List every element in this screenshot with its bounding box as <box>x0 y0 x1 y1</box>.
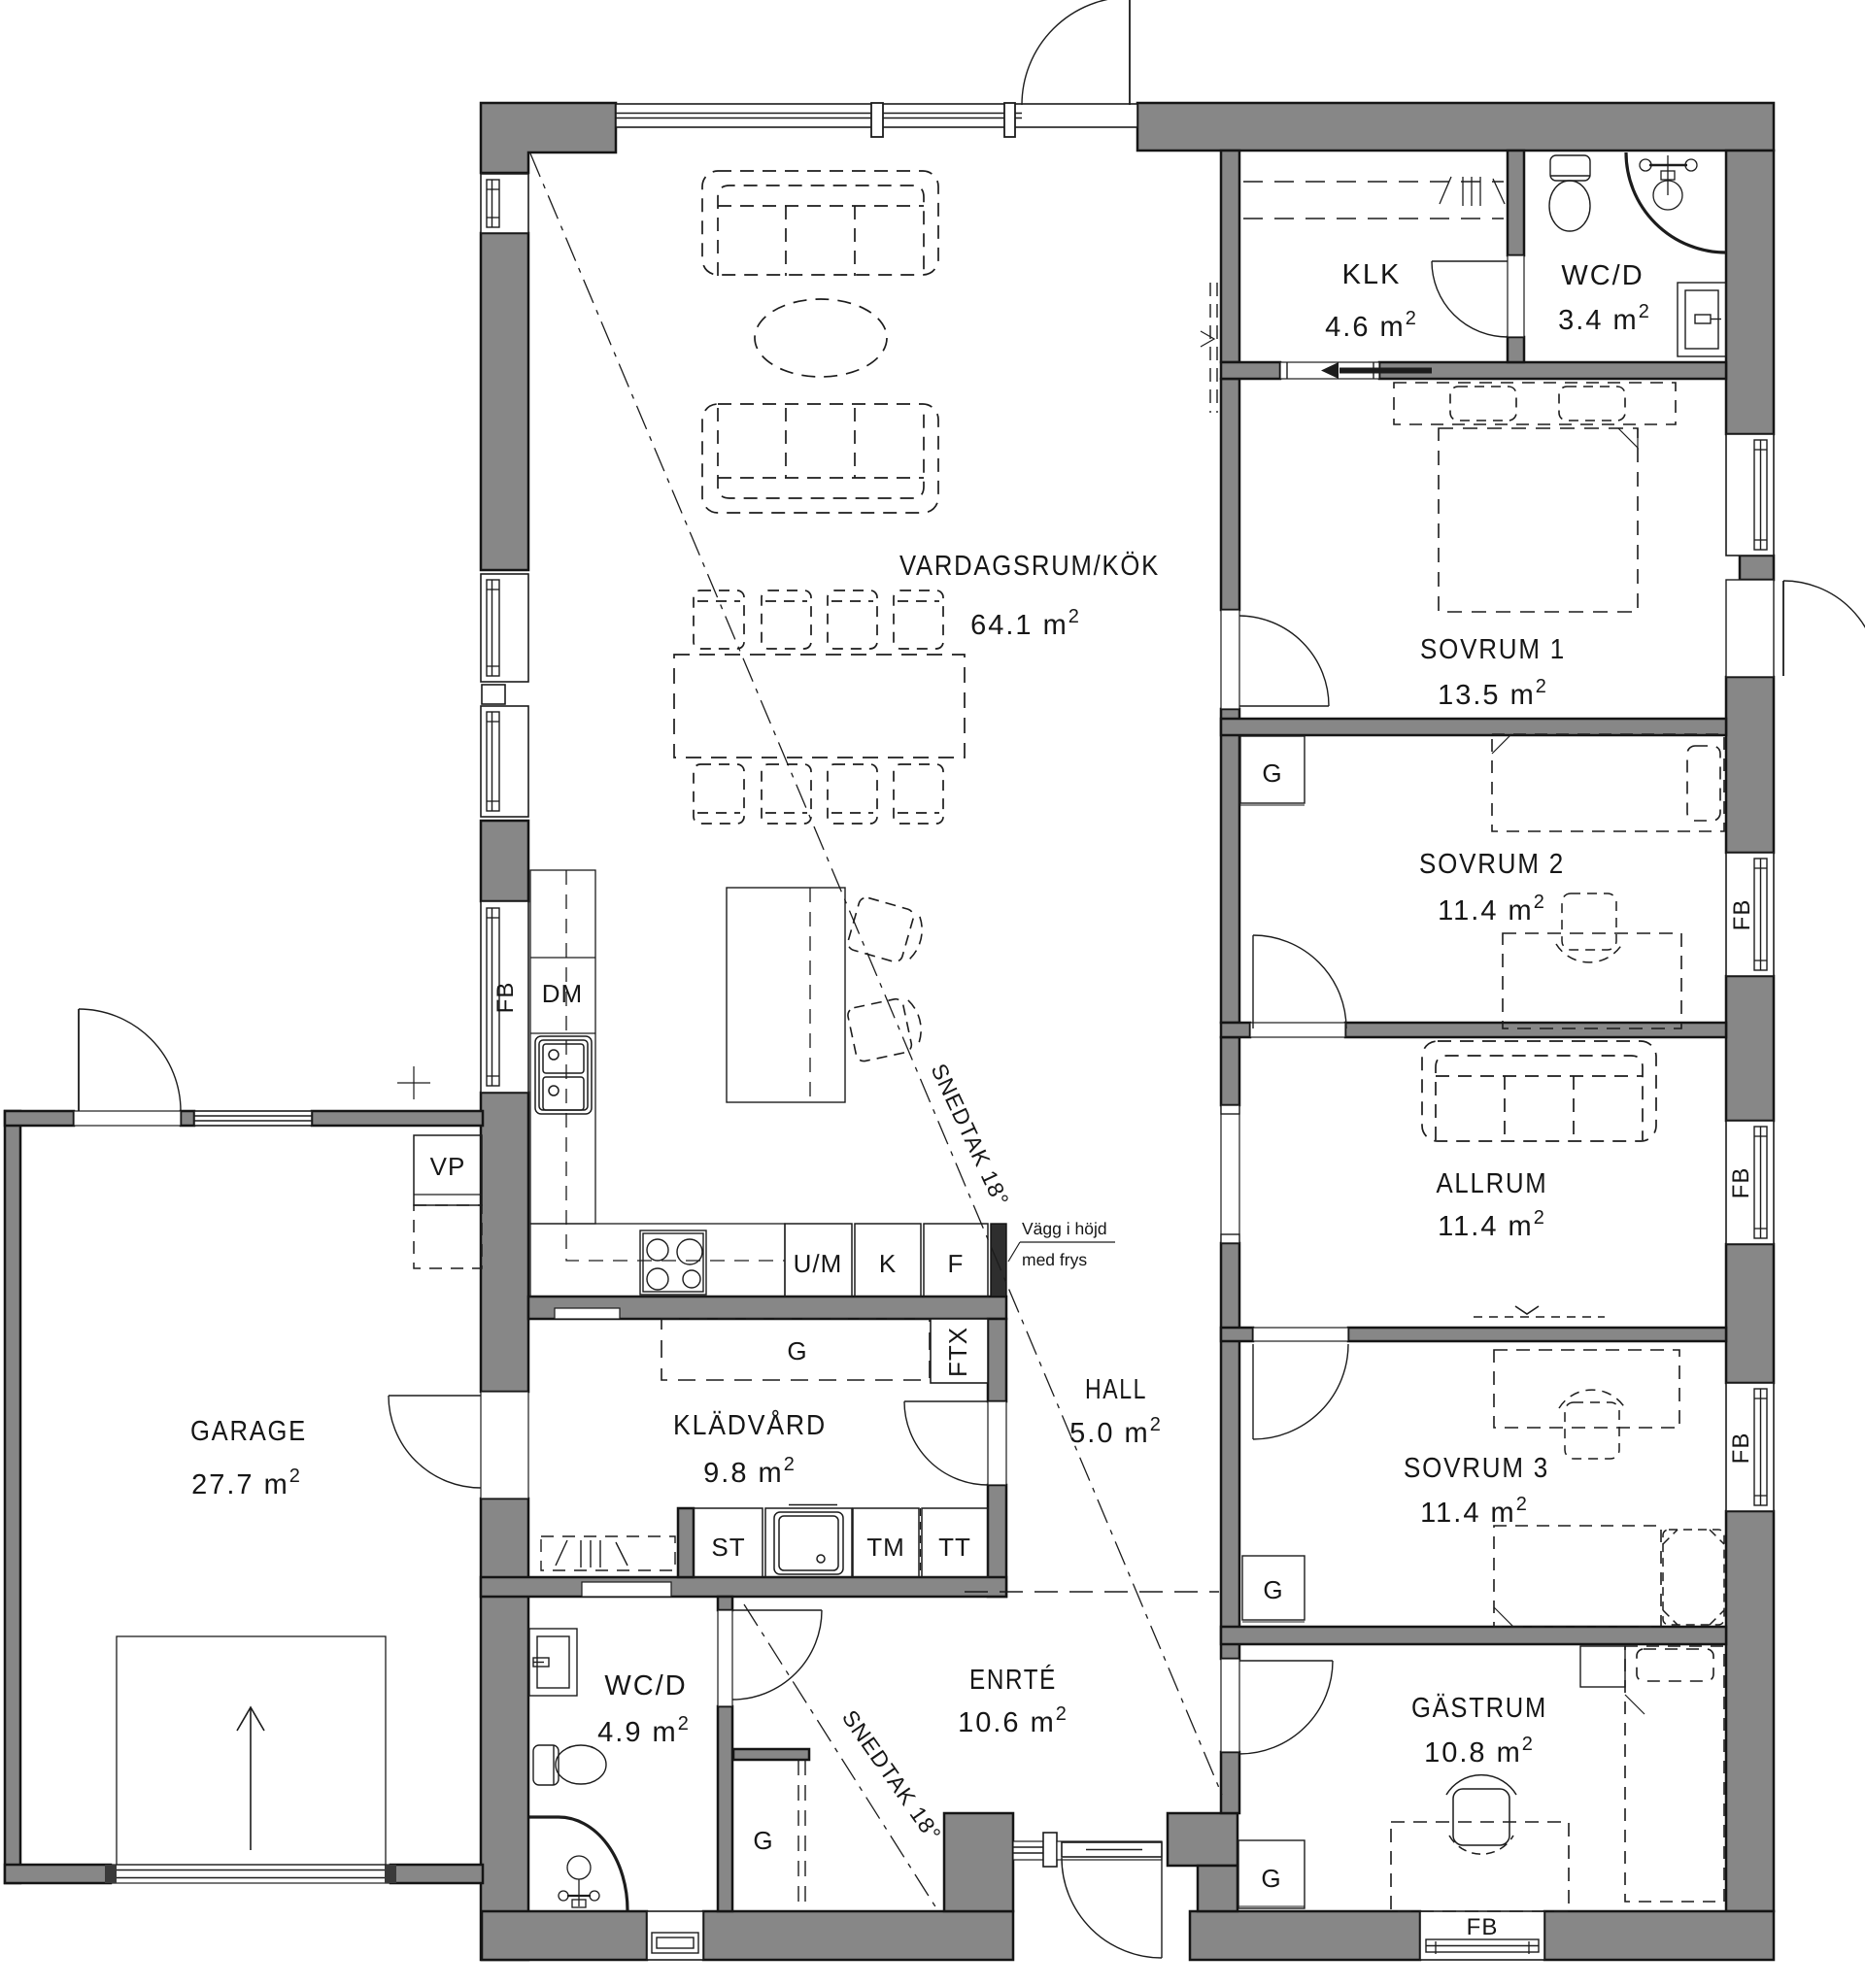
svg-text:G: G <box>787 1336 807 1365</box>
svg-text:FB: FB <box>1729 899 1755 931</box>
svg-text:FB: FB <box>1728 1167 1754 1199</box>
svg-text:KLÄDVÅRD: KLÄDVÅRD <box>673 1409 827 1441</box>
svg-text:GÄSTRUM: GÄSTRUM <box>1411 1693 1547 1724</box>
svg-text:HALL: HALL <box>1085 1374 1147 1405</box>
svg-text:F: F <box>948 1249 965 1278</box>
svg-text:SOVRUM 1: SOVRUM 1 <box>1420 634 1566 665</box>
svg-text:G: G <box>753 1826 773 1855</box>
svg-text:DM: DM <box>542 979 583 1008</box>
svg-text:SOVRUM 3: SOVRUM 3 <box>1404 1453 1549 1484</box>
svg-text:ENRTÉ: ENRTÉ <box>969 1664 1057 1696</box>
svg-text:TM: TM <box>866 1533 905 1562</box>
svg-text:G: G <box>1263 1575 1283 1604</box>
svg-text:ALLRUM: ALLRUM <box>1437 1168 1548 1199</box>
svg-text:WC/D: WC/D <box>1561 260 1644 291</box>
svg-text:64.1 m2: 64.1 m2 <box>970 606 1081 641</box>
svg-text:FB: FB <box>1467 1914 1499 1940</box>
svg-text:FTX: FTX <box>943 1327 972 1377</box>
svg-text:G: G <box>1262 758 1282 788</box>
svg-text:4.6 m2: 4.6 m2 <box>1325 308 1418 343</box>
svg-text:11.4 m2: 11.4 m2 <box>1438 1207 1546 1242</box>
svg-text:5.0 m2: 5.0 m2 <box>1069 1414 1163 1449</box>
svg-text:GARAGE: GARAGE <box>190 1416 307 1447</box>
svg-text:K: K <box>879 1249 897 1278</box>
svg-text:SOVRUM 2: SOVRUM 2 <box>1419 849 1565 880</box>
svg-text:10.6 m2: 10.6 m2 <box>958 1703 1068 1738</box>
svg-text:VP: VP <box>430 1152 466 1181</box>
svg-text:WC/D: WC/D <box>604 1670 687 1702</box>
svg-text:VARDAGSRUM/KÖK: VARDAGSRUM/KÖK <box>899 551 1160 582</box>
svg-text:13.5 m2: 13.5 m2 <box>1438 676 1548 711</box>
svg-text:4.9 m2: 4.9 m2 <box>597 1713 691 1748</box>
svg-text:KLK: KLK <box>1342 259 1402 290</box>
svg-text:FB: FB <box>492 982 519 1014</box>
svg-text:med frys: med frys <box>1022 1250 1087 1269</box>
svg-text:FB: FB <box>1728 1432 1754 1465</box>
svg-text:3.4 m2: 3.4 m2 <box>1558 301 1651 336</box>
svg-text:ST: ST <box>711 1533 745 1562</box>
svg-text:11.4 m2: 11.4 m2 <box>1438 892 1546 927</box>
svg-text:10.8 m2: 10.8 m2 <box>1424 1734 1535 1769</box>
svg-text:Vägg i höjd: Vägg i höjd <box>1022 1219 1107 1238</box>
svg-text:U/M: U/M <box>794 1249 843 1278</box>
svg-text:9.8 m2: 9.8 m2 <box>703 1454 797 1489</box>
svg-text:TT: TT <box>938 1533 971 1562</box>
svg-text:11.4 m2: 11.4 m2 <box>1420 1494 1529 1529</box>
svg-text:27.7 m2: 27.7 m2 <box>191 1466 302 1500</box>
svg-text:G: G <box>1261 1864 1281 1893</box>
